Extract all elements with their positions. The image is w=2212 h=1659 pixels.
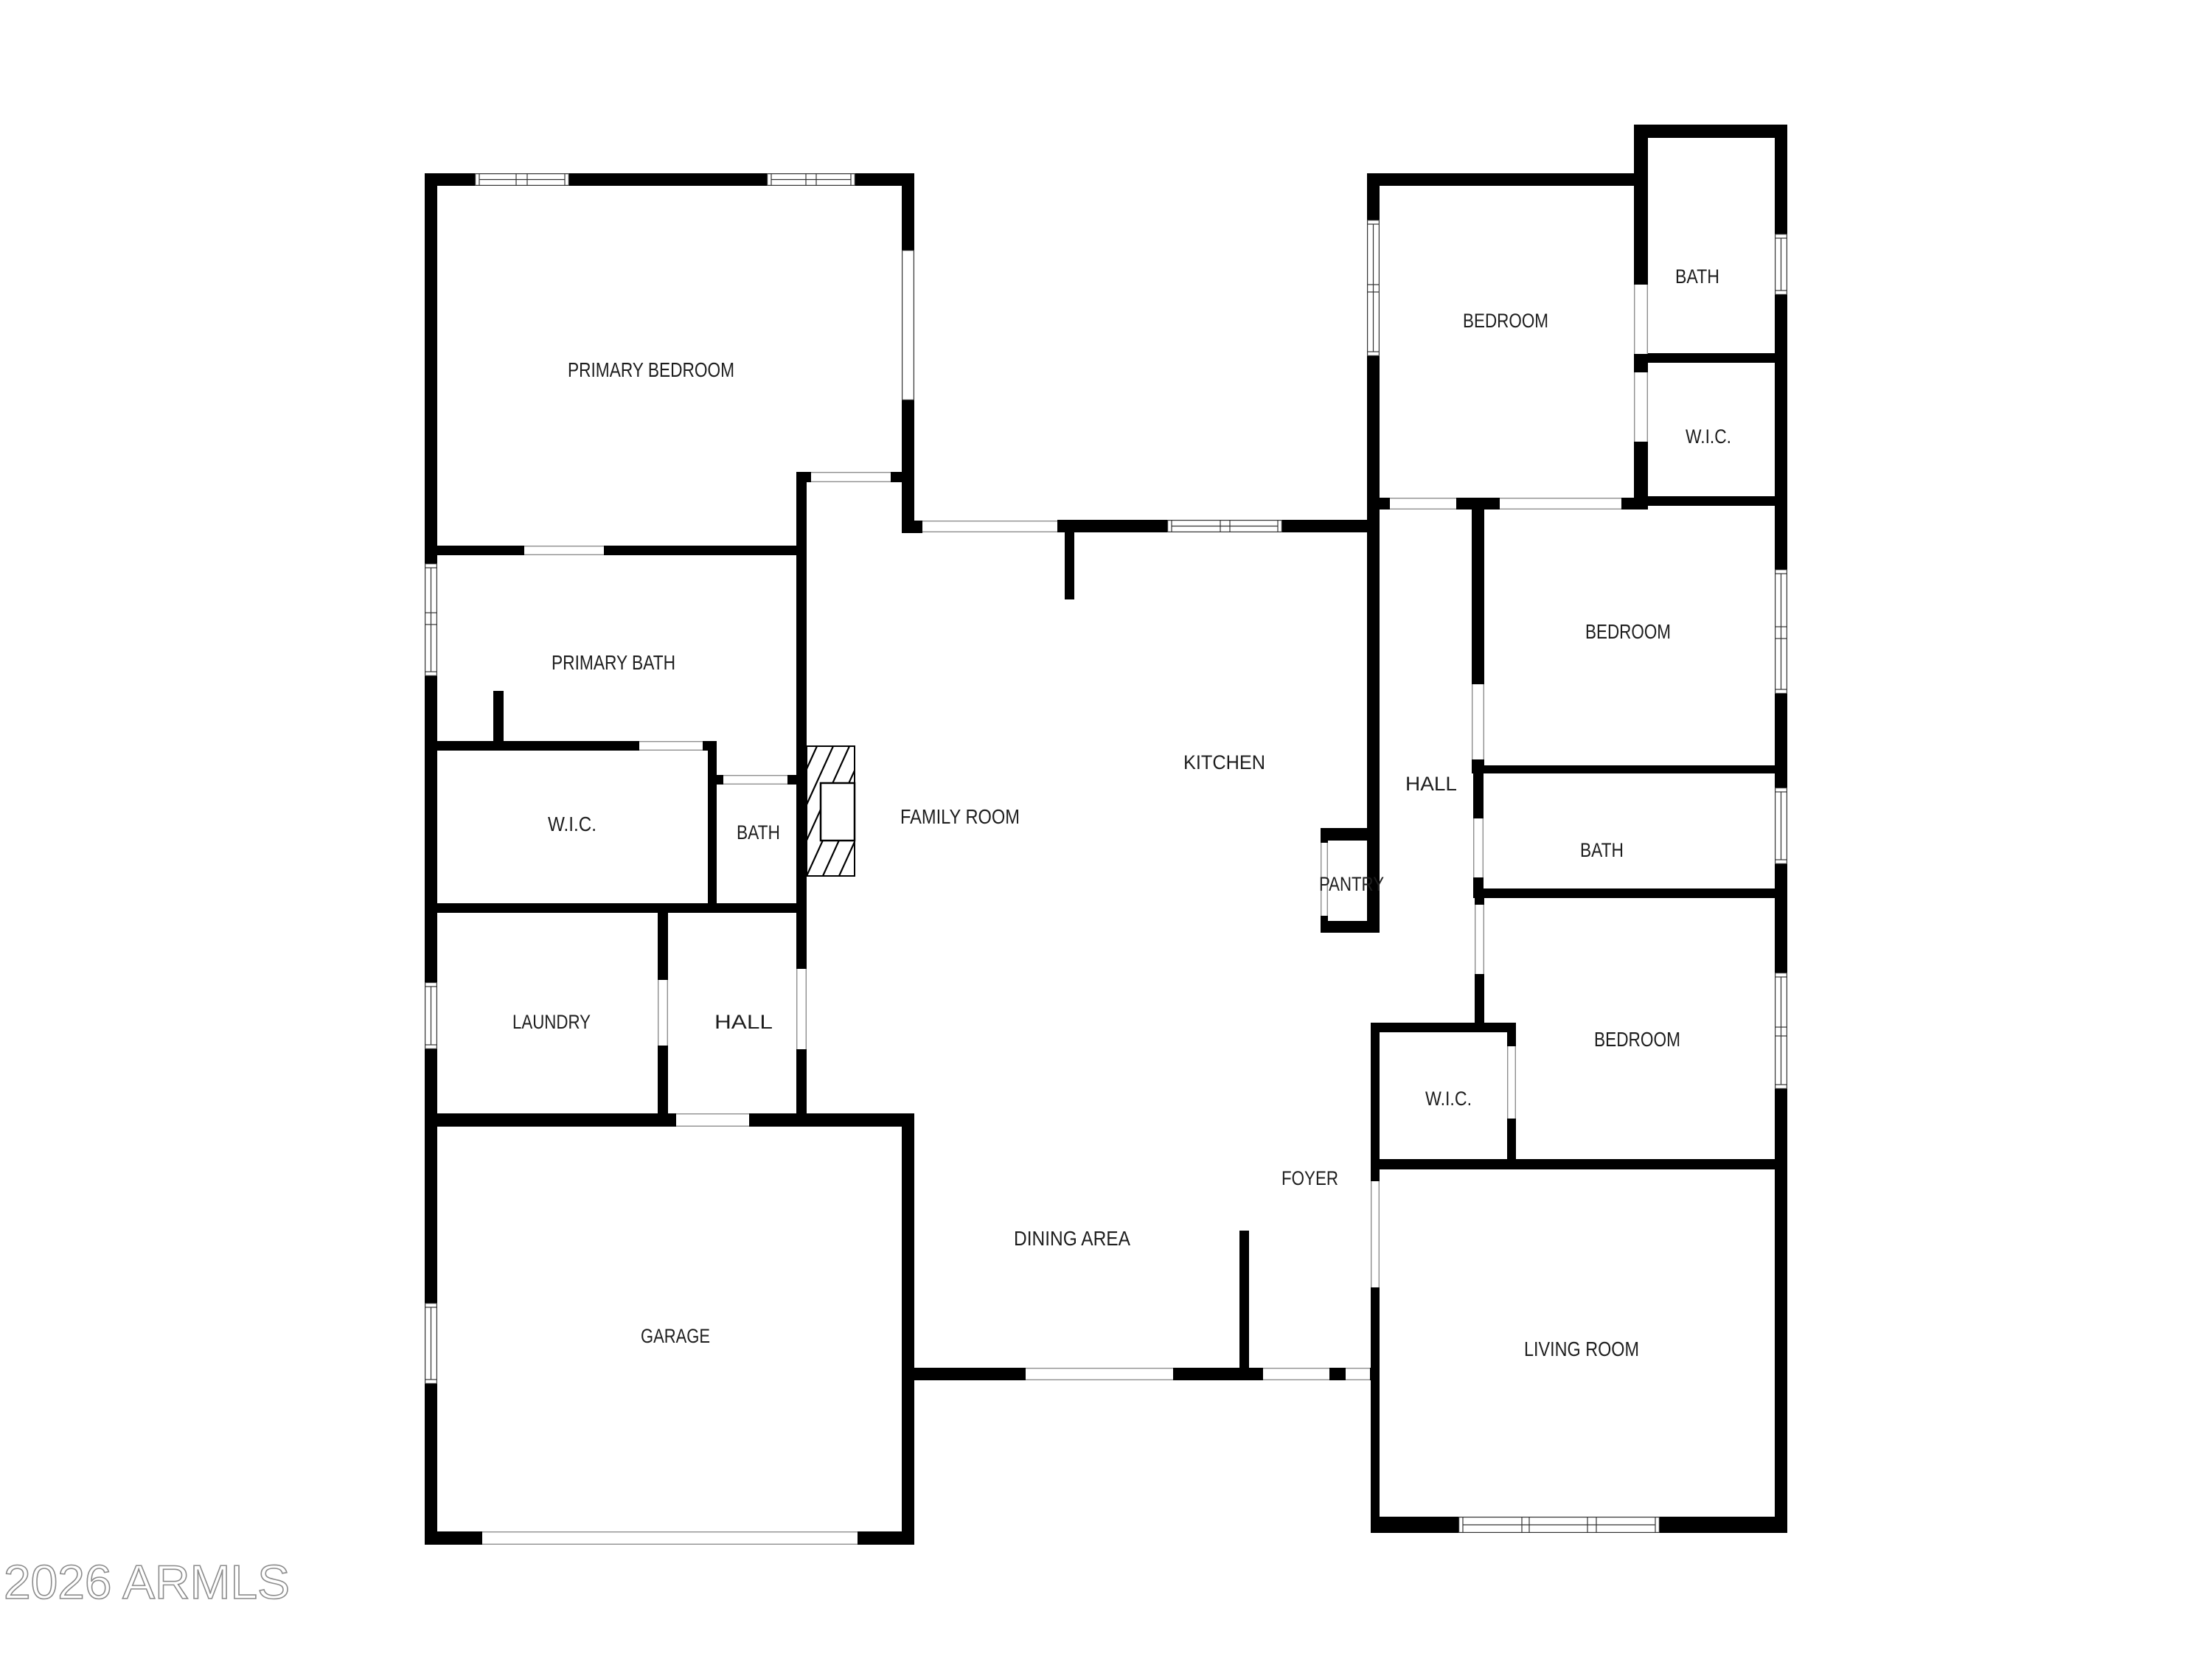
- svg-text:DINING AREA: DINING AREA: [1014, 1227, 1130, 1250]
- svg-text:HALL: HALL: [1405, 773, 1457, 795]
- svg-text:W.I.C.: W.I.C.: [548, 813, 597, 835]
- svg-text:BEDROOM: BEDROOM: [1585, 620, 1671, 643]
- svg-text:PRIMARY BEDROOM: PRIMARY BEDROOM: [568, 358, 734, 381]
- svg-text:BEDROOM: BEDROOM: [1594, 1028, 1680, 1051]
- svg-text:W.I.C.: W.I.C.: [1425, 1088, 1472, 1110]
- svg-text:LIVING ROOM: LIVING ROOM: [1524, 1338, 1639, 1360]
- svg-text:PRIMARY BATH: PRIMARY BATH: [552, 651, 675, 674]
- svg-text:FAMILY ROOM: FAMILY ROOM: [900, 805, 1020, 828]
- svg-text:2026 ARMLS: 2026 ARMLS: [4, 1555, 290, 1609]
- svg-text:BATH: BATH: [1675, 265, 1719, 288]
- svg-text:FOYER: FOYER: [1281, 1167, 1338, 1189]
- svg-text:BATH: BATH: [737, 821, 780, 844]
- svg-text:BEDROOM: BEDROOM: [1463, 310, 1548, 332]
- svg-text:GARAGE: GARAGE: [641, 1325, 710, 1347]
- svg-text:W.I.C.: W.I.C.: [1686, 425, 1731, 448]
- svg-text:HALL: HALL: [714, 1011, 773, 1033]
- svg-text:PANTRY: PANTRY: [1319, 873, 1384, 895]
- svg-text:LAUNDRY: LAUNDRY: [512, 1011, 591, 1033]
- svg-text:BATH: BATH: [1580, 839, 1624, 861]
- svg-text:KITCHEN: KITCHEN: [1183, 751, 1265, 773]
